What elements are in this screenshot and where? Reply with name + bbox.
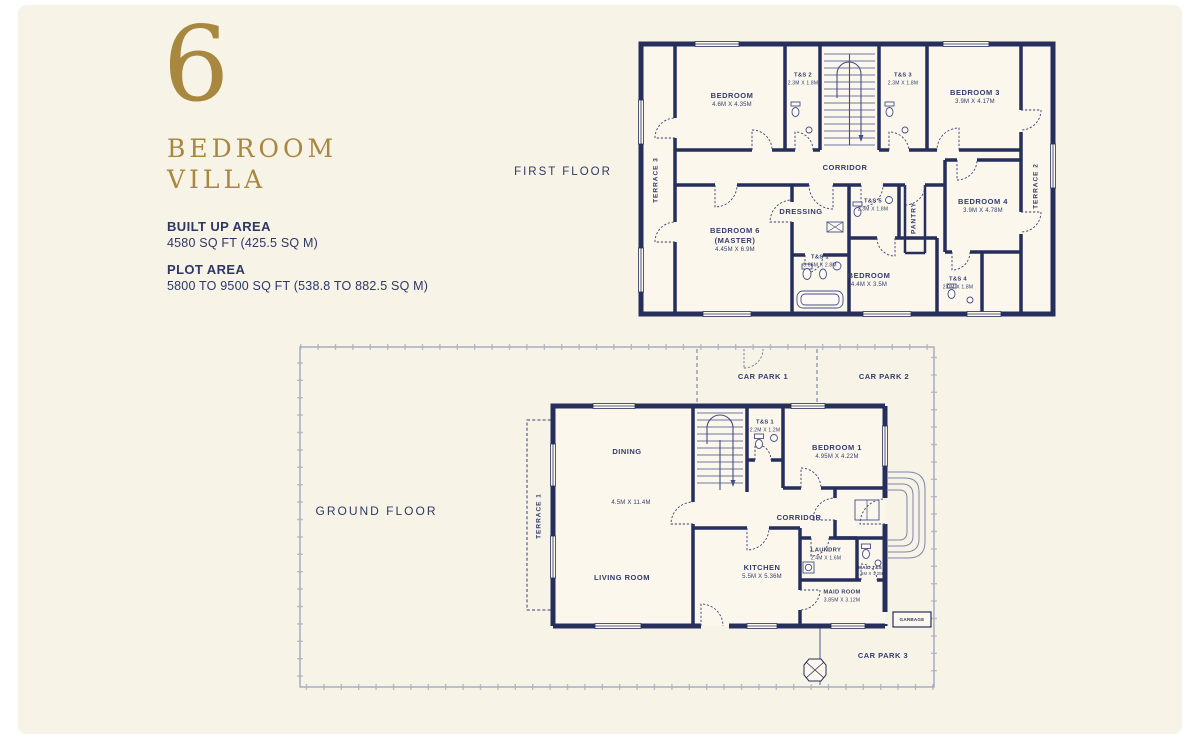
room-label-corridor-gf: CORRIDOR [777,513,822,523]
terrace2-label: TERRACE 2 [1033,163,1042,209]
room-label-bedroom-top-left: BEDROOM 4.6M X 4.35M [711,91,754,109]
plot-area: PLOT AREA 5800 TO 9500 SQ FT (538.8 TO 8… [167,262,428,293]
room-label-ts2: T&S 2 2.3M X 1.8M [788,73,819,88]
first-floor-title: FIRST FLOOR [498,166,628,178]
room-label-car-park-1: CAR PARK 1 [738,372,788,382]
room-label-dining-living-dims: 4.5M X 11.4M [611,499,650,507]
room-label-car-park-2: CAR PARK 2 [859,372,909,382]
ground-floor-plan: CAR PARK 1 CAR PARK 2 T&S 1 2.2M X 1.2M … [295,340,940,695]
room-label-garbage: GARBAGE [900,617,925,623]
room-label-ts-gf: T&S 1 2.2M X 1.2M [750,420,781,435]
villa-title-line2: VILLA [167,164,337,195]
room-label-ts4: T&S 4 2.0M X 1.8M [943,277,974,292]
room-label-car-park-3: CAR PARK 3 [858,651,908,661]
terrace1-label: TERRACE 1 [536,493,545,539]
room-label-ts5: T&S 5 2.3M X 1.8M [858,199,889,214]
built-up-area: BUILT UP AREA 4580 SQ FT (425.5 SQ M) [167,219,318,250]
room-label-laundry: LAUNDRY 2.4M X 1.6M [811,548,842,563]
room-label-pantry: PANTRY [911,202,920,234]
room-label-ts3: T&S 3 2.3M X 1.8M [888,73,919,88]
planter-octagon [804,659,826,681]
room-label-dressing: DRESSING [779,207,822,217]
villa-number: 6 [163,12,229,116]
built-up-area-value: 4580 SQ FT (425.5 SQ M) [167,236,318,250]
room-label-bedroom6: BEDROOM 6 (MASTER) 4.45M X 6.9M [710,226,760,254]
room-label-living-room: LIVING ROOM [594,573,650,583]
first-floor-plan: BEDROOM 4.6M X 4.35M T&S 2 2.3M X 1.8M T… [637,40,1057,318]
room-label-maid-ts: MAID T&S 1.8M X 1.2M [857,565,883,577]
terrace3-label: TERRACE 3 [653,157,662,203]
room-label-bedroom4: BEDROOM 4 3.9M X 4.78M [958,197,1008,215]
brochure-page: 6 BEDROOM VILLA BUILT UP AREA 4580 SQ FT… [0,0,1200,742]
plot-area-label: PLOT AREA [167,262,428,277]
room-label-dining: DINING [612,447,641,457]
room-label-kitchen: KITCHEN 5.5M X 5.36M [742,563,782,581]
built-up-area-label: BUILT UP AREA [167,219,318,234]
room-label-ts1-ff: T&S 1 3.66M X 2.8M [803,255,837,270]
villa-title-line1: BEDROOM [167,133,337,164]
villa-title: BEDROOM VILLA [167,133,337,196]
entry-steps [887,472,925,558]
room-label-bedroom-mid: BEDROOM 4.4M X 3.5M [848,271,891,289]
room-label-maid-room: MAID ROOM 3.85M X 3.12M [823,590,860,605]
plot-area-value: 5800 TO 9500 SQ FT (538.8 TO 882.5 SQ M) [167,279,428,293]
ground-floor-drawing [295,340,940,695]
room-label-bedroom1: BEDROOM 1 4.95M X 4.22M [812,443,862,461]
room-label-corridor-ff: CORRIDOR [823,163,868,173]
room-label-bedroom3: BEDROOM 3 3.9M X 4.17M [950,88,1000,106]
